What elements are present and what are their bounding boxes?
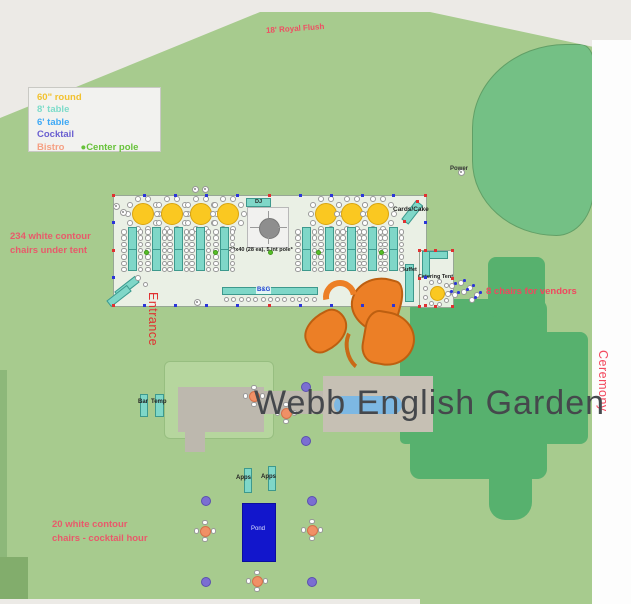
chair[interactable] xyxy=(127,220,133,226)
chair[interactable] xyxy=(423,286,428,291)
chair[interactable] xyxy=(167,254,173,260)
selection-handle xyxy=(418,277,421,280)
selection-handle xyxy=(424,304,427,307)
center-pole-marker xyxy=(144,250,149,255)
utility-marker-dot xyxy=(194,188,196,190)
chair[interactable] xyxy=(230,261,236,267)
selection-handle xyxy=(451,277,454,280)
center-pole-marker xyxy=(268,250,273,255)
banquet-table[interactable] xyxy=(347,227,356,271)
selection-handle xyxy=(451,249,454,252)
selection-handle xyxy=(299,194,302,197)
selection-handle xyxy=(463,279,466,282)
chair[interactable] xyxy=(210,211,216,217)
chair[interactable] xyxy=(145,254,151,260)
chair[interactable] xyxy=(230,242,236,248)
chair[interactable] xyxy=(230,229,236,235)
chair[interactable] xyxy=(145,261,151,267)
chair[interactable] xyxy=(360,211,366,217)
selection-handle xyxy=(434,305,437,308)
chair[interactable] xyxy=(318,254,324,260)
chair[interactable] xyxy=(261,297,266,302)
cocktail-table[interactable] xyxy=(301,436,311,446)
chair[interactable] xyxy=(309,519,315,525)
chair[interactable] xyxy=(230,248,236,254)
selection-handle xyxy=(112,221,115,224)
selection-handle xyxy=(451,305,454,308)
floor-plan-canvas: DJ *20x40 (28 ea), 5 int pole* B&G Buffe… xyxy=(0,0,631,604)
chair[interactable] xyxy=(312,297,317,302)
chair[interactable] xyxy=(185,202,191,208)
chair[interactable] xyxy=(202,537,208,543)
legend-item-label: 6' table xyxy=(37,117,69,128)
chair[interactable] xyxy=(399,261,405,267)
chair[interactable] xyxy=(295,229,301,235)
chair[interactable] xyxy=(213,229,219,235)
selection-handle xyxy=(112,249,115,252)
chair[interactable] xyxy=(362,220,368,226)
chair[interactable] xyxy=(318,196,324,202)
chair[interactable] xyxy=(138,254,144,260)
chair[interactable] xyxy=(437,302,442,307)
chair[interactable] xyxy=(238,202,244,208)
chair[interactable] xyxy=(312,235,318,241)
chair[interactable] xyxy=(297,297,302,302)
chair[interactable] xyxy=(310,202,316,208)
chair[interactable] xyxy=(334,211,340,217)
chair[interactable] xyxy=(344,196,350,202)
chair[interactable] xyxy=(380,196,386,202)
chair[interactable] xyxy=(263,578,269,584)
chair[interactable] xyxy=(121,229,127,235)
selection-handle xyxy=(418,305,421,308)
chair[interactable] xyxy=(138,235,144,241)
banquet-table[interactable] xyxy=(389,227,398,271)
chair[interactable] xyxy=(213,267,219,273)
chair[interactable] xyxy=(230,235,236,241)
chair[interactable] xyxy=(145,235,151,241)
chair[interactable] xyxy=(145,267,151,273)
legend-item: Cocktail xyxy=(37,129,152,141)
chair[interactable] xyxy=(121,261,127,267)
chair[interactable] xyxy=(189,267,195,273)
selection-handle xyxy=(361,194,364,197)
chair[interactable] xyxy=(361,248,367,254)
chair[interactable] xyxy=(336,220,342,226)
chair[interactable] xyxy=(239,297,244,302)
selection-handle xyxy=(392,194,395,197)
round-table[interactable] xyxy=(217,203,239,225)
chair[interactable] xyxy=(312,261,318,267)
chair[interactable] xyxy=(388,202,394,208)
chair[interactable] xyxy=(361,261,367,267)
chair[interactable] xyxy=(154,211,160,217)
chair[interactable] xyxy=(399,254,405,260)
chair[interactable] xyxy=(318,261,324,267)
chair[interactable] xyxy=(399,229,405,235)
selection-handle xyxy=(174,194,177,197)
chair[interactable] xyxy=(429,301,434,306)
chair[interactable] xyxy=(211,528,217,534)
chair[interactable] xyxy=(295,248,301,254)
chair[interactable] xyxy=(167,267,173,273)
chair[interactable] xyxy=(444,283,449,288)
legend-panel: 60" round8' table6' tableCocktailBistro●… xyxy=(28,87,161,152)
chair[interactable] xyxy=(212,202,218,208)
selection-handle xyxy=(472,284,475,287)
chair[interactable] xyxy=(194,528,200,534)
chair[interactable] xyxy=(304,297,309,302)
chair[interactable] xyxy=(238,220,244,226)
chair[interactable] xyxy=(399,248,405,254)
chair[interactable] xyxy=(312,229,318,235)
legend-item: 60" round xyxy=(37,92,152,104)
chair[interactable] xyxy=(354,196,360,202)
chair[interactable] xyxy=(370,196,376,202)
chair[interactable] xyxy=(202,520,208,526)
bistro-table[interactable] xyxy=(307,525,318,536)
chair[interactable] xyxy=(295,267,301,273)
chair[interactable] xyxy=(167,235,173,241)
chair[interactable] xyxy=(295,254,301,260)
chair[interactable] xyxy=(206,267,212,273)
chair[interactable] xyxy=(212,220,218,226)
selection-handle xyxy=(424,194,427,197)
selection-handle xyxy=(457,291,460,294)
selection-handle xyxy=(299,304,302,307)
selection-handle xyxy=(268,194,271,197)
chair[interactable] xyxy=(336,202,342,208)
chair[interactable] xyxy=(437,279,442,284)
chair[interactable] xyxy=(145,196,151,202)
banquet-table[interactable] xyxy=(368,227,377,271)
banquet-table[interactable] xyxy=(220,227,229,271)
utility-marker-dot xyxy=(204,188,206,190)
round-table[interactable] xyxy=(367,203,389,225)
selection-handle xyxy=(330,194,333,197)
chair[interactable] xyxy=(193,196,199,202)
chair[interactable] xyxy=(220,196,226,202)
chair[interactable] xyxy=(206,261,212,267)
chair[interactable] xyxy=(138,242,144,248)
chair[interactable] xyxy=(145,242,151,248)
chair[interactable] xyxy=(399,267,405,273)
chair[interactable] xyxy=(121,248,127,254)
chair[interactable] xyxy=(206,242,212,248)
chair[interactable] xyxy=(310,220,316,226)
selection-handle xyxy=(450,290,453,293)
chair[interactable] xyxy=(189,229,195,235)
chair[interactable] xyxy=(301,527,307,533)
selection-handle xyxy=(236,194,239,197)
chair[interactable] xyxy=(189,261,195,267)
legend-item-label: 60" round xyxy=(37,92,82,103)
chair[interactable] xyxy=(361,235,367,241)
chair[interactable] xyxy=(340,229,346,235)
chair[interactable] xyxy=(318,235,324,241)
chair[interactable] xyxy=(167,242,173,248)
chair[interactable] xyxy=(213,261,219,267)
chair[interactable] xyxy=(189,242,195,248)
chair[interactable] xyxy=(295,235,301,241)
chair[interactable] xyxy=(361,254,367,260)
chair[interactable] xyxy=(143,282,148,287)
round-table[interactable] xyxy=(430,286,445,301)
chair[interactable] xyxy=(138,248,144,254)
chair[interactable] xyxy=(156,220,162,226)
chair[interactable] xyxy=(246,578,252,584)
selection-handle xyxy=(112,276,115,279)
chair[interactable] xyxy=(135,275,141,281)
chair[interactable] xyxy=(312,254,318,260)
chair[interactable] xyxy=(340,242,346,248)
chair[interactable] xyxy=(206,229,212,235)
chair[interactable] xyxy=(295,242,301,248)
chair[interactable] xyxy=(308,211,314,217)
chair[interactable] xyxy=(213,235,219,241)
chair[interactable] xyxy=(241,211,247,217)
chair[interactable] xyxy=(183,211,189,217)
chair[interactable] xyxy=(253,297,258,302)
chair[interactable] xyxy=(318,229,324,235)
chair[interactable] xyxy=(295,261,301,267)
round-table[interactable] xyxy=(190,203,212,225)
tent-chairs-note: 234 white contour chairs under tent xyxy=(10,230,110,258)
bistro-table[interactable] xyxy=(200,526,211,537)
selection-handle xyxy=(392,304,395,307)
selection-handle xyxy=(424,276,427,279)
chair[interactable] xyxy=(224,297,229,302)
chair[interactable] xyxy=(135,196,141,202)
chair[interactable] xyxy=(382,242,388,248)
chair[interactable] xyxy=(243,393,249,399)
banquet-table[interactable] xyxy=(325,227,334,271)
chair[interactable] xyxy=(167,261,173,267)
selection-handle xyxy=(143,194,146,197)
chair[interactable] xyxy=(254,587,260,593)
selection-handle xyxy=(479,291,482,294)
selection-handle xyxy=(416,200,419,203)
legend-item: Bistro●Center pole xyxy=(37,142,152,154)
chair[interactable] xyxy=(361,229,367,235)
chair[interactable] xyxy=(318,267,324,273)
selection-handle xyxy=(454,282,457,285)
cocktail-table[interactable] xyxy=(307,496,317,506)
cocktail-table[interactable] xyxy=(307,577,317,587)
chair[interactable] xyxy=(382,267,388,273)
chair[interactable] xyxy=(391,211,397,217)
chair[interactable] xyxy=(156,202,162,208)
chair[interactable] xyxy=(268,297,273,302)
selection-handle xyxy=(434,249,437,252)
bistro-table[interactable] xyxy=(252,576,263,587)
chair[interactable] xyxy=(127,202,133,208)
chair[interactable] xyxy=(444,298,449,303)
center-pole-marker xyxy=(316,250,321,255)
round-table[interactable] xyxy=(132,203,154,225)
banquet-table[interactable] xyxy=(196,227,205,271)
chair[interactable] xyxy=(382,254,388,260)
banquet-table[interactable] xyxy=(174,227,183,271)
map-place-name: Webb English Garden xyxy=(254,384,605,423)
cocktail-table[interactable] xyxy=(201,577,211,587)
chair[interactable] xyxy=(231,297,236,302)
chair[interactable] xyxy=(399,235,405,241)
legend-item-label: Bistro xyxy=(37,142,64,153)
chair[interactable] xyxy=(167,248,173,254)
chair[interactable] xyxy=(138,261,144,267)
cocktail-chairs-note: 20 white contour chairs - cocktail hour xyxy=(52,518,156,545)
chair[interactable] xyxy=(340,261,346,267)
selection-handle xyxy=(205,194,208,197)
power-label: Power xyxy=(450,166,468,172)
chair[interactable] xyxy=(318,242,324,248)
chair[interactable] xyxy=(121,235,127,241)
legend-item-label: Cocktail xyxy=(37,129,74,140)
chair[interactable] xyxy=(361,267,367,273)
chair[interactable] xyxy=(340,235,346,241)
cocktail-table[interactable] xyxy=(201,496,211,506)
chair[interactable] xyxy=(362,202,368,208)
chair[interactable] xyxy=(185,220,191,226)
chair[interactable] xyxy=(121,242,127,248)
legend-center-pole-label: ●Center pole xyxy=(80,142,138,153)
selection-handle xyxy=(330,304,333,307)
chair[interactable] xyxy=(189,254,195,260)
chair[interactable] xyxy=(213,242,219,248)
chair[interactable] xyxy=(399,242,405,248)
chair[interactable] xyxy=(206,254,212,260)
selection-handle xyxy=(112,194,115,197)
chair[interactable] xyxy=(138,229,144,235)
round-table[interactable] xyxy=(161,203,183,225)
center-pole-marker xyxy=(379,250,384,255)
center-pole-marker xyxy=(213,250,218,255)
utility-marker-dot xyxy=(196,301,198,303)
chair[interactable] xyxy=(213,254,219,260)
utility-marker-dot xyxy=(115,205,117,207)
chair[interactable] xyxy=(382,229,388,235)
utility-marker-dot xyxy=(122,211,124,213)
banquet-table[interactable] xyxy=(152,227,161,271)
chair[interactable] xyxy=(318,527,324,533)
chair[interactable] xyxy=(312,267,318,273)
chair[interactable] xyxy=(138,267,144,273)
selection-handle xyxy=(236,304,239,307)
chair[interactable] xyxy=(121,254,127,260)
chair[interactable] xyxy=(167,229,173,235)
chair[interactable] xyxy=(340,248,346,254)
selection-handle xyxy=(403,220,406,223)
chair[interactable] xyxy=(189,235,195,241)
chair[interactable] xyxy=(206,248,212,254)
chair[interactable] xyxy=(230,196,236,202)
chair[interactable] xyxy=(121,267,127,273)
chair[interactable] xyxy=(164,196,170,202)
chair[interactable] xyxy=(328,196,334,202)
chair[interactable] xyxy=(388,220,394,226)
banquet-table[interactable] xyxy=(128,227,137,271)
chair[interactable] xyxy=(230,267,236,273)
chair[interactable] xyxy=(254,570,260,576)
chair[interactable] xyxy=(382,235,388,241)
selection-handle xyxy=(418,249,421,252)
vendor-chairs-note: 8 chairs for vendors xyxy=(486,286,577,297)
chair[interactable] xyxy=(423,295,428,300)
chair[interactable] xyxy=(282,297,287,302)
selection-handle xyxy=(205,304,208,307)
chair[interactable] xyxy=(340,267,346,273)
chair[interactable] xyxy=(145,229,151,235)
selection-handle xyxy=(361,304,364,307)
selection-handle xyxy=(466,288,469,291)
selection-handle xyxy=(112,304,115,307)
banquet-table[interactable] xyxy=(302,227,311,271)
chair[interactable] xyxy=(312,242,318,248)
chair[interactable] xyxy=(206,235,212,241)
selection-handle xyxy=(424,221,427,224)
chair[interactable] xyxy=(275,297,280,302)
chair[interactable] xyxy=(290,297,295,302)
chair[interactable] xyxy=(230,254,236,260)
chair[interactable] xyxy=(361,242,367,248)
chair[interactable] xyxy=(246,297,251,302)
chair[interactable] xyxy=(309,536,315,542)
selection-handle xyxy=(174,304,177,307)
chair[interactable] xyxy=(203,196,209,202)
selection-handle xyxy=(424,249,427,252)
selection-handle xyxy=(268,304,271,307)
chair[interactable] xyxy=(189,248,195,254)
chair[interactable] xyxy=(174,196,180,202)
legend-item: 8' table xyxy=(37,104,152,116)
chair[interactable] xyxy=(340,254,346,260)
entrance-label: Entrance xyxy=(146,292,160,346)
legend-item: 6' table xyxy=(37,117,152,129)
chair[interactable] xyxy=(429,280,434,285)
selection-handle xyxy=(474,296,477,299)
legend-item-label: 8' table xyxy=(37,104,69,115)
chair[interactable] xyxy=(382,261,388,267)
